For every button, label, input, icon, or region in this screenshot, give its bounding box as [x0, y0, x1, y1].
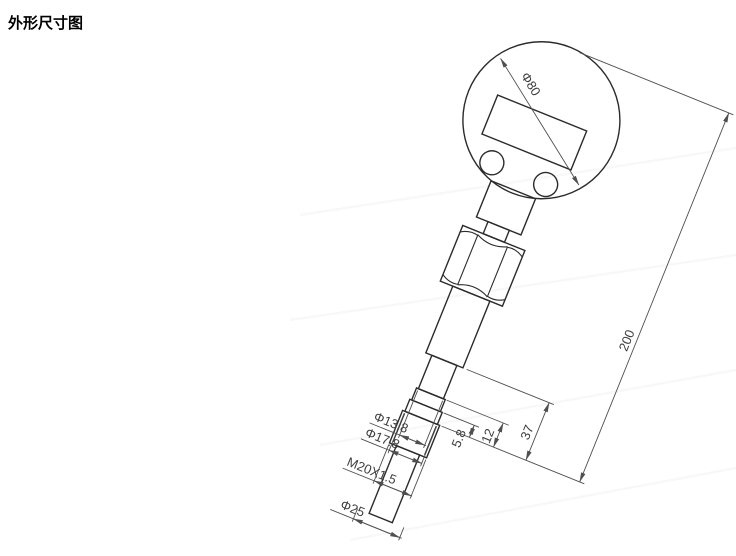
scan-streaks — [290, 148, 736, 540]
outline-dimension-drawing: Φ80 200 37 — [0, 0, 736, 556]
dim-37-label: 37 — [517, 423, 536, 442]
dim-12-label: 12 — [478, 426, 497, 445]
dim-head-diameter: Φ80 — [468, 58, 613, 185]
right-button — [530, 169, 561, 200]
hex-nut — [440, 225, 525, 306]
dim-thread-spec: M20X1.5 — [343, 453, 419, 496]
probe-section-upper — [418, 355, 457, 398]
dim-head-diameter-label: Φ80 — [518, 70, 544, 99]
left-button — [476, 147, 507, 178]
dim-overall-length-label: 200 — [616, 327, 638, 353]
dim-flange-diameter-25-label: Φ25 — [338, 497, 367, 520]
probe-section-mid — [405, 399, 442, 424]
probe-collar — [412, 388, 446, 412]
lcd-display — [482, 95, 587, 170]
gauge-head-outline — [439, 18, 643, 222]
